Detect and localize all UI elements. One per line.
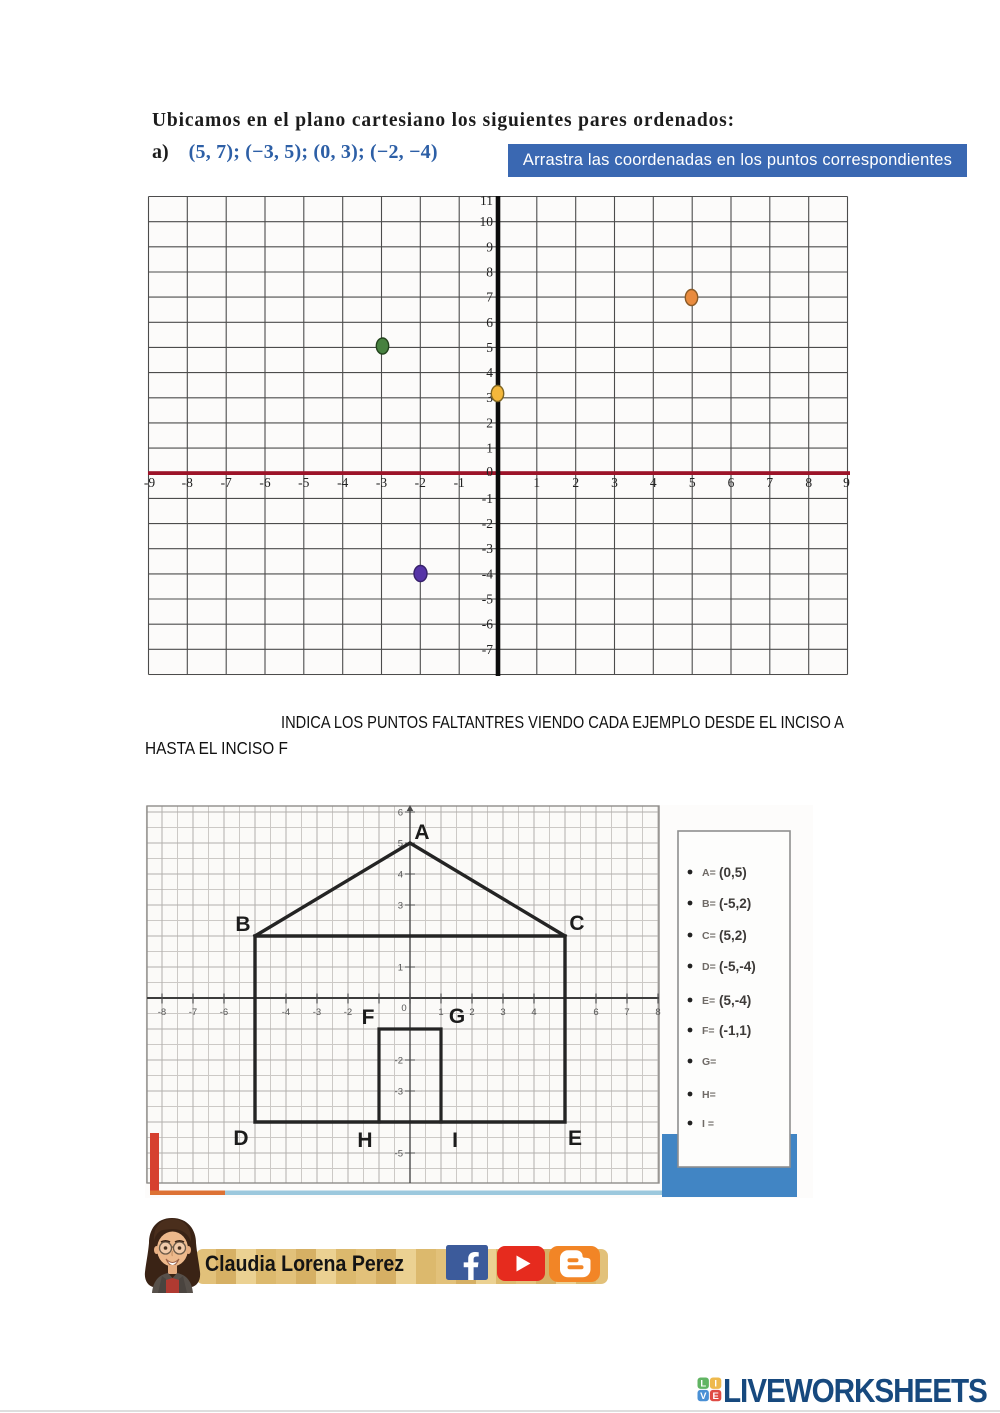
- svg-text:-2: -2: [415, 475, 426, 490]
- svg-text:-5: -5: [482, 592, 493, 607]
- svg-text:G: G: [449, 1005, 465, 1028]
- svg-text:4: 4: [486, 365, 493, 380]
- svg-text:(-1,1): (-1,1): [719, 1023, 751, 1038]
- svg-text:-8: -8: [158, 1007, 166, 1018]
- svg-text:-3: -3: [313, 1007, 321, 1018]
- svg-text:C=: C=: [702, 930, 716, 942]
- svg-text:8: 8: [486, 264, 493, 279]
- svg-text:F=: F=: [702, 1025, 715, 1037]
- svg-text:V: V: [700, 1391, 707, 1402]
- svg-text:1: 1: [398, 963, 403, 974]
- svg-text:-1: -1: [482, 491, 493, 506]
- svg-text:F: F: [362, 1006, 375, 1029]
- svg-text:-3: -3: [395, 1087, 403, 1098]
- svg-text:5: 5: [689, 475, 696, 490]
- svg-text:-3: -3: [482, 541, 493, 556]
- svg-text:(5,2): (5,2): [719, 928, 747, 943]
- svg-text:-9: -9: [144, 475, 155, 490]
- svg-text:H=: H=: [702, 1089, 716, 1101]
- svg-text:(0,5): (0,5): [719, 865, 747, 880]
- svg-text:4: 4: [650, 475, 657, 490]
- svg-text:E=: E=: [702, 995, 715, 1007]
- svg-text:D: D: [233, 1127, 248, 1150]
- svg-text:-4: -4: [482, 566, 493, 581]
- svg-text:3: 3: [500, 1007, 505, 1018]
- svg-text:3: 3: [398, 901, 403, 912]
- svg-text:6: 6: [728, 475, 735, 490]
- svg-text:-5: -5: [298, 475, 309, 490]
- svg-text:A: A: [414, 821, 429, 844]
- svg-text:-6: -6: [482, 617, 493, 632]
- svg-text:E: E: [568, 1127, 582, 1150]
- svg-text:9: 9: [486, 239, 493, 254]
- svg-text:-2: -2: [482, 516, 493, 531]
- svg-text:1: 1: [438, 1007, 443, 1018]
- svg-text:11: 11: [480, 193, 493, 208]
- svg-text:1: 1: [533, 475, 540, 490]
- svg-text:-7: -7: [482, 642, 493, 657]
- svg-text:0: 0: [486, 464, 493, 479]
- svg-text:B: B: [235, 913, 250, 936]
- svg-text:-4: -4: [282, 1007, 290, 1018]
- svg-text:A=: A=: [702, 867, 716, 879]
- svg-text:-8: -8: [182, 475, 193, 490]
- svg-text:7: 7: [766, 475, 773, 490]
- svg-text:-7: -7: [221, 475, 232, 490]
- svg-text:2: 2: [486, 415, 493, 430]
- svg-text:-7: -7: [189, 1007, 197, 1018]
- svg-text:(5,-4): (5,-4): [719, 993, 751, 1008]
- svg-text:I: I: [452, 1129, 458, 1152]
- svg-text:0: 0: [401, 1003, 406, 1014]
- svg-text:2: 2: [572, 475, 579, 490]
- svg-text:7: 7: [624, 1007, 629, 1018]
- svg-text:I =: I =: [702, 1118, 714, 1130]
- svg-text:-5: -5: [395, 1149, 403, 1160]
- svg-text:9: 9: [843, 475, 850, 490]
- svg-text:10: 10: [480, 214, 494, 229]
- svg-text:-1: -1: [454, 475, 465, 490]
- svg-text:-2: -2: [344, 1007, 352, 1018]
- svg-text:6: 6: [398, 808, 403, 819]
- svg-text:8: 8: [655, 1007, 660, 1018]
- svg-text:6: 6: [593, 1007, 598, 1018]
- svg-text:C: C: [569, 912, 584, 935]
- svg-text:7: 7: [486, 290, 493, 305]
- svg-text:D=: D=: [702, 961, 716, 973]
- svg-text:-2: -2: [395, 1056, 403, 1067]
- svg-text:-4: -4: [337, 475, 348, 490]
- svg-text:L: L: [700, 1379, 706, 1390]
- svg-text:4: 4: [398, 870, 403, 881]
- svg-text:5: 5: [486, 340, 493, 355]
- svg-text:I: I: [714, 1379, 717, 1390]
- svg-text:B=: B=: [702, 898, 716, 910]
- svg-text:(-5,2): (-5,2): [719, 896, 751, 911]
- svg-text:E: E: [713, 1391, 719, 1402]
- svg-text:G=: G=: [702, 1056, 716, 1068]
- svg-text:(-5,-4): (-5,-4): [719, 959, 756, 974]
- svg-text:2: 2: [469, 1007, 474, 1018]
- svg-text:8: 8: [805, 475, 812, 490]
- svg-text:-6: -6: [259, 475, 270, 490]
- svg-text:H: H: [357, 1129, 372, 1152]
- svg-text:6: 6: [486, 315, 493, 330]
- svg-text:1: 1: [486, 441, 493, 456]
- svg-text:4: 4: [531, 1007, 536, 1018]
- svg-text:-3: -3: [376, 475, 387, 490]
- svg-text:-6: -6: [220, 1007, 228, 1018]
- svg-text:3: 3: [611, 475, 618, 490]
